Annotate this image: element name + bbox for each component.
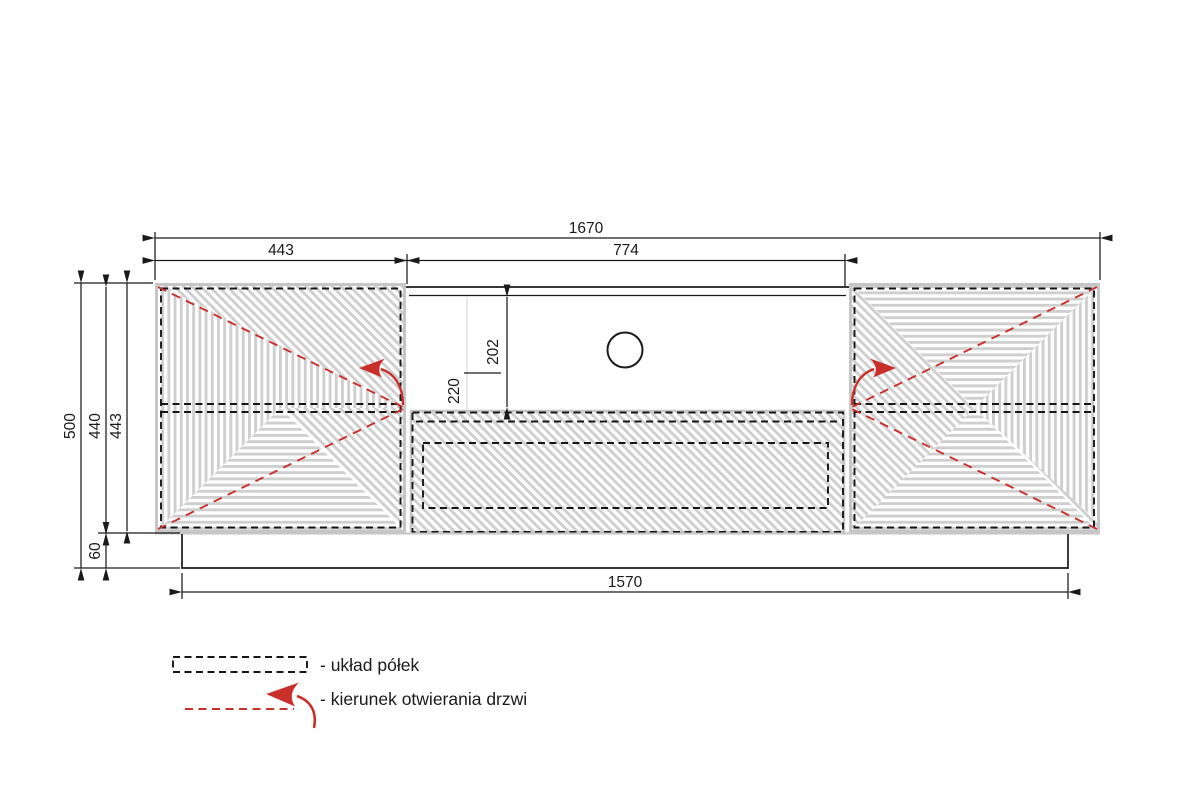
dim-plinth-height-label: 60	[87, 542, 104, 560]
dim-niche-height-label: 202	[485, 339, 502, 365]
dim-plinth-width-label: 1570	[608, 574, 643, 591]
dim-drawer-height-label: 220	[446, 378, 463, 404]
legend-shelf-swatch	[173, 657, 307, 672]
drawer-front-texture	[410, 410, 845, 533]
dim-body-height-label: 440	[87, 413, 104, 439]
cable-hole	[608, 333, 643, 368]
plinth-outline	[182, 534, 1068, 568]
dim-total-width-label: 1670	[569, 220, 604, 237]
right-door-panel	[849, 283, 1100, 533]
middle-section	[406, 287, 849, 533]
dim-left-door-width-label: 443	[268, 242, 294, 259]
legend-door-label: - kierunek otwierania drzwi	[320, 689, 527, 709]
dim-door-height-label: 443	[108, 413, 125, 439]
dim-overall-height-label: 500	[62, 413, 79, 439]
technical-drawing-page: 1670 443 774 500 440 443 60 202 220 1570…	[0, 0, 1200, 800]
legend-shelf-label: - układ półek	[320, 655, 419, 675]
legend: - układ półek - kierunek otwierania drzw…	[173, 655, 527, 728]
left-door-panel	[155, 283, 406, 533]
legend-door-arrow-head	[266, 683, 299, 707]
dim-middle-width-label: 774	[613, 242, 639, 259]
furniture-technical-drawing: 1670 443 774 500 440 443 60 202 220 1570…	[0, 0, 1200, 800]
legend-door-arrow-curve	[297, 696, 315, 728]
